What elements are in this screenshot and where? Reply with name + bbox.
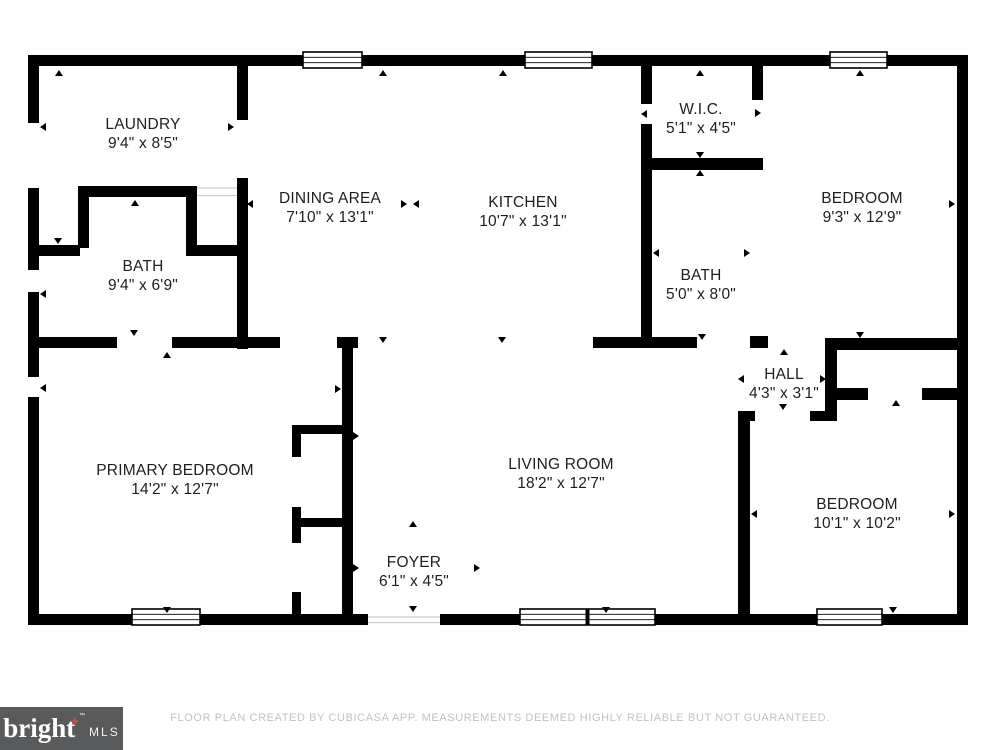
door-arrow-icon: [474, 564, 480, 572]
logo-mls-text: MLS: [89, 726, 120, 738]
door-arrow-icon: [738, 375, 744, 383]
door-arrow-icon: [751, 510, 757, 518]
door-arrow-icon: [130, 330, 138, 336]
room-kitchen-name: KITCHEN: [479, 193, 567, 212]
window-icon: [303, 52, 362, 68]
room-bath-right: BATH 5'0" x 8'0": [666, 266, 736, 304]
room-foyer-name: FOYER: [379, 553, 449, 572]
window-icon: [817, 609, 882, 625]
room-laundry-dims: 9'4" x 8'5": [105, 134, 180, 153]
door-arrow-icon: [892, 400, 900, 406]
room-dining-area-dims: 7'10" x 13'1": [279, 208, 381, 227]
door-arrow-icon: [40, 290, 46, 298]
room-bedroom-top-right-dims: 9'3" x 12'9": [821, 208, 903, 227]
door-arrow-icon: [499, 70, 507, 76]
door-arrow-icon: [401, 200, 407, 208]
room-living-room-name: LIVING ROOM: [508, 455, 614, 474]
room-foyer-dims: 6'1" x 4'5": [379, 572, 449, 591]
door-arrow-icon: [949, 200, 955, 208]
door-arrow-icon: [353, 432, 359, 440]
room-living-room: LIVING ROOM 18'2" x 12'7": [508, 455, 614, 493]
door-arrow-icon: [54, 238, 62, 244]
door-arrow-icon: [413, 200, 419, 208]
room-dining-area-name: DINING AREA: [279, 189, 381, 208]
room-bedroom-bottom-right-dims: 10'1" x 10'2": [813, 514, 901, 533]
window-icon: [830, 52, 887, 68]
room-wic: W.I.C. 5'1" x 4'5": [666, 100, 736, 138]
door-arrow-icon: [498, 337, 506, 343]
door-arrow-icon: [780, 349, 788, 355]
room-kitchen-dims: 10'7" x 13'1": [479, 212, 567, 231]
floor-plan: LAUNDRY 9'4" x 8'5" BATH 9'4" x 6'9" DIN…: [0, 0, 1000, 750]
room-laundry: LAUNDRY 9'4" x 8'5": [105, 115, 180, 153]
wall: [593, 337, 697, 348]
door-arrow-icon: [353, 564, 359, 572]
room-kitchen: KITCHEN 10'7" x 13'1": [479, 193, 567, 231]
wall: [39, 245, 80, 256]
door-arrow-icon: [40, 123, 46, 131]
wall: [641, 158, 763, 170]
window-icon: [520, 609, 655, 625]
room-primary-bedroom: PRIMARY BEDROOM 14'2" x 12'7": [96, 461, 253, 499]
disclaimer-text: FLOOR PLAN CREATED BY CUBICASA APP. MEAS…: [170, 712, 830, 724]
door-arrow-icon: [379, 70, 387, 76]
wall: [292, 592, 301, 614]
room-bedroom-bottom-right: BEDROOM 10'1" x 10'2": [813, 495, 901, 533]
wall: [172, 337, 280, 348]
window-icon: [525, 52, 592, 68]
room-bath-left-dims: 9'4" x 6'9": [108, 276, 178, 295]
door-arrow-icon: [163, 352, 171, 358]
wall: [28, 55, 39, 123]
wall: [237, 178, 248, 349]
room-foyer: FOYER 6'1" x 4'5": [379, 553, 449, 591]
room-hall-dims: 4'3" x 3'1": [749, 384, 819, 403]
wall: [186, 186, 197, 248]
room-hall-name: HALL: [749, 365, 819, 384]
wall: [752, 66, 763, 100]
room-bedroom-top-right: BEDROOM 9'3" x 12'9": [821, 189, 903, 227]
wall: [738, 411, 750, 625]
room-bath-left: BATH 9'4" x 6'9": [108, 257, 178, 295]
room-primary-bedroom-dims: 14'2" x 12'7": [96, 480, 253, 499]
logo-brand-text: bright: [3, 715, 75, 742]
wall: [28, 188, 39, 270]
door-arrow-icon: [856, 332, 864, 338]
door-arrow-icon: [228, 123, 234, 131]
wall: [237, 66, 248, 120]
door-arrow-icon: [55, 70, 63, 76]
door-arrow-icon: [696, 152, 704, 158]
room-bedroom-bottom-right-name: BEDROOM: [813, 495, 901, 514]
room-laundry-name: LAUNDRY: [105, 115, 180, 134]
wall: [186, 245, 248, 256]
room-wic-name: W.I.C.: [666, 100, 736, 119]
room-bath-right-name: BATH: [666, 266, 736, 285]
room-bedroom-top-right-name: BEDROOM: [821, 189, 903, 208]
wall: [28, 397, 39, 625]
door-arrow-icon: [131, 200, 139, 206]
floor-plan-graphics: [0, 0, 1000, 750]
wall: [825, 338, 968, 350]
room-dining-area: DINING AREA 7'10" x 13'1": [279, 189, 381, 227]
door-arrow-icon: [409, 606, 417, 612]
wall: [837, 388, 868, 400]
wall: [28, 337, 117, 348]
wall: [292, 507, 301, 543]
room-primary-bedroom-name: PRIMARY BEDROOM: [96, 461, 253, 480]
door-arrow-icon: [779, 404, 787, 410]
door-arrow-icon: [889, 607, 897, 613]
door-arrow-icon: [40, 384, 46, 392]
door-arrow-icon: [949, 510, 955, 518]
room-living-room-dims: 18'2" x 12'7": [508, 474, 614, 493]
room-wic-dims: 5'1" x 4'5": [666, 119, 736, 138]
wall: [78, 186, 89, 248]
door-arrow-icon: [653, 249, 659, 257]
wall: [922, 388, 968, 400]
door-arrow-icon: [335, 385, 341, 393]
room-bath-right-dims: 5'0" x 8'0": [666, 285, 736, 304]
door-arrow-icon: [696, 70, 704, 76]
wall: [641, 66, 652, 104]
brightmls-logo: bright+™MLS: [0, 707, 123, 750]
logo-tm-mark: ™: [79, 713, 85, 719]
wall: [28, 55, 968, 66]
door-arrow-icon: [641, 110, 647, 118]
door-arrow-icon: [744, 249, 750, 257]
door-arrow-icon: [696, 170, 704, 176]
door-arrow-icon: [698, 334, 706, 340]
logo-plus-icon: +: [70, 714, 79, 729]
wall: [750, 336, 768, 348]
door-arrow-icon: [379, 337, 387, 343]
room-bath-left-name: BATH: [108, 257, 178, 276]
door-arrow-icon: [856, 70, 864, 76]
wall: [28, 292, 39, 377]
door-arrow-icon: [409, 521, 417, 527]
wall: [78, 186, 197, 197]
room-hall: HALL 4'3" x 3'1": [749, 365, 819, 403]
door-arrow-icon: [755, 109, 761, 117]
wall: [641, 124, 652, 348]
wall: [342, 337, 353, 625]
wall: [292, 425, 301, 457]
wall: [810, 411, 837, 421]
